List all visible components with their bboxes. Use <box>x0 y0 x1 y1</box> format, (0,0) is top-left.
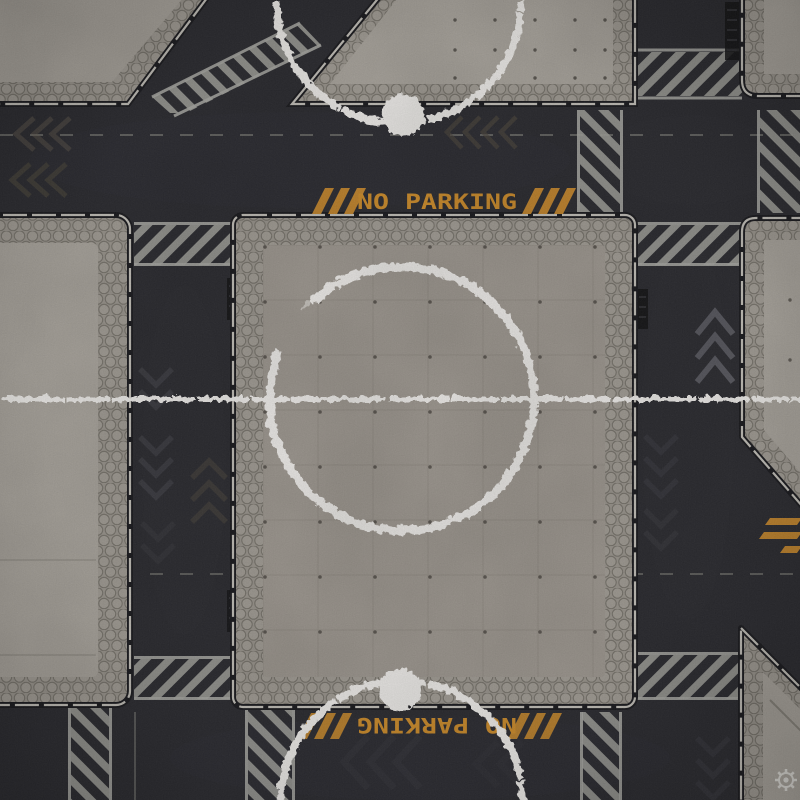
game-mat: NO PARKING NO PARKING <box>0 0 800 800</box>
vignette <box>0 0 800 800</box>
mat-canvas: NO PARKING NO PARKING <box>0 0 800 800</box>
